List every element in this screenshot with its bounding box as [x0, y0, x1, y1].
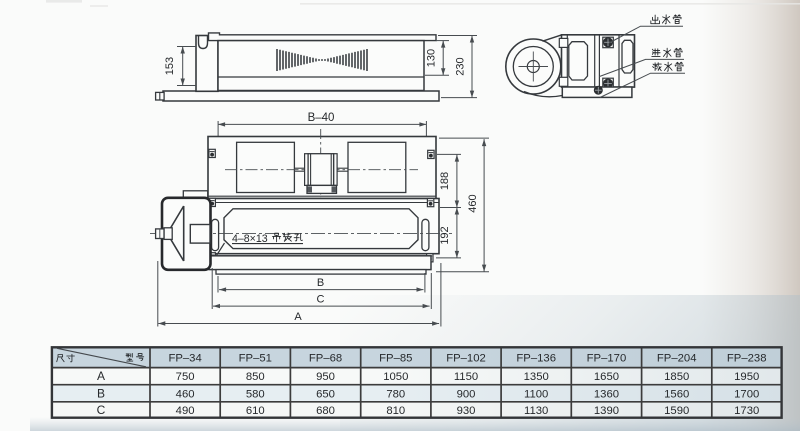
svg-text:FP–102: FP–102	[446, 353, 486, 365]
svg-text:C: C	[97, 403, 106, 417]
svg-text:1850: 1850	[664, 371, 689, 383]
svg-text:FP–34: FP–34	[168, 353, 201, 365]
svg-text:FP–136: FP–136	[516, 353, 556, 365]
svg-text:130: 130	[426, 49, 438, 67]
svg-text:1050: 1050	[383, 371, 408, 383]
svg-text:FP–51: FP–51	[239, 353, 272, 365]
svg-text:810: 810	[386, 405, 405, 417]
svg-text:192: 192	[439, 226, 451, 244]
svg-text:A: A	[294, 311, 302, 323]
svg-text:B: B	[317, 277, 324, 289]
svg-text:1350: 1350	[524, 371, 549, 383]
svg-text:FP–170: FP–170	[587, 353, 627, 365]
svg-text:FP–204: FP–204	[657, 353, 697, 365]
svg-text:1390: 1390	[594, 405, 619, 417]
svg-text:1730: 1730	[734, 405, 759, 417]
svg-text:850: 850	[246, 371, 265, 383]
svg-text:950: 950	[316, 371, 335, 383]
svg-text:B–40: B–40	[308, 112, 335, 124]
svg-text:580: 580	[246, 388, 265, 400]
svg-text:780: 780	[386, 388, 405, 400]
svg-text:650: 650	[316, 388, 335, 400]
svg-text:900: 900	[457, 388, 476, 400]
svg-text:1100: 1100	[524, 388, 548, 400]
svg-text:1650: 1650	[594, 371, 619, 383]
svg-text:680: 680	[316, 405, 335, 417]
svg-text:C: C	[317, 294, 325, 306]
svg-text:750: 750	[176, 371, 195, 383]
svg-text:1950: 1950	[734, 371, 759, 383]
svg-text:FP–238: FP–238	[727, 353, 767, 365]
svg-text:1590: 1590	[664, 405, 689, 417]
svg-text:188: 188	[439, 172, 451, 190]
svg-text:1150: 1150	[454, 371, 478, 383]
svg-text:153: 153	[164, 57, 176, 75]
svg-text:460: 460	[176, 388, 195, 400]
svg-text:1700: 1700	[734, 388, 759, 400]
svg-text:460: 460	[467, 194, 479, 212]
svg-text:930: 930	[457, 405, 476, 417]
svg-text:1560: 1560	[664, 388, 689, 400]
svg-text:B: B	[97, 386, 105, 400]
svg-text:FP–85: FP–85	[379, 353, 412, 365]
svg-text:490: 490	[176, 405, 195, 417]
svg-text:230: 230	[455, 57, 467, 75]
svg-text:610: 610	[246, 405, 265, 417]
svg-text:A: A	[97, 369, 105, 383]
svg-text:1360: 1360	[594, 388, 619, 400]
svg-text:FP–68: FP–68	[309, 353, 342, 365]
svg-text:1130: 1130	[524, 405, 548, 417]
